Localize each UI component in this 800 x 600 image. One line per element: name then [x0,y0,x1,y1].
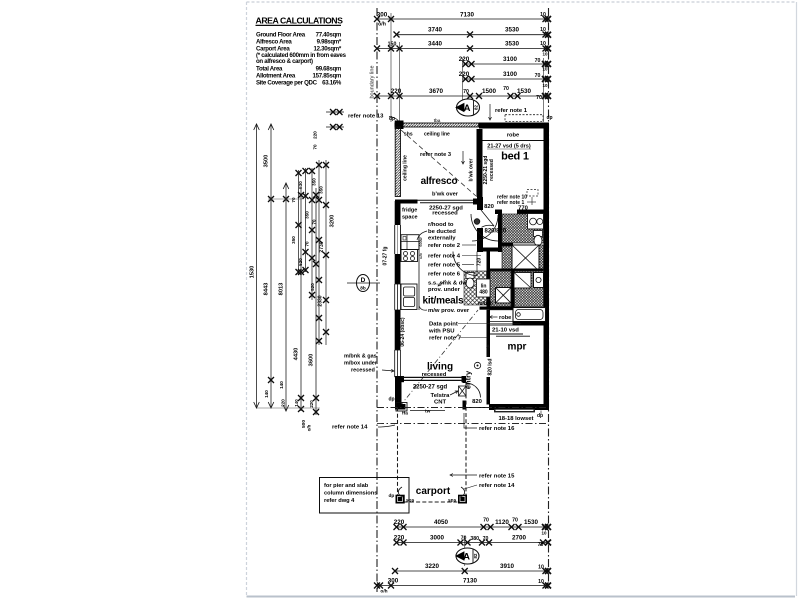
svg-text:column dimensions: column dimensions [324,491,377,497]
svg-text:10: 10 [540,27,546,33]
svg-text:10: 10 [540,41,546,47]
svg-text:820 lsd: 820 lsd [488,359,494,376]
svg-text:21-10 vsd: 21-10 vsd [492,328,519,334]
svg-text:3740: 3740 [428,27,443,34]
svg-text:ffa: ffa [402,411,408,417]
svg-text:3440: 3440 [428,41,443,48]
svg-text:70: 70 [535,73,541,79]
svg-text:8443: 8443 [264,283,270,296]
svg-text:70: 70 [312,219,317,225]
svg-text:2250-27 sgd: 2250-27 sgd [413,385,448,391]
svg-text:520: 520 [310,283,315,291]
svg-text:3530: 3530 [505,41,520,48]
svg-text:2730: 2730 [319,241,325,252]
svg-text:220: 220 [313,131,318,139]
svg-text:dp: dp [389,493,395,499]
svg-text:fridge: fridge [402,208,417,214]
svg-text:Data point: Data point [429,322,458,328]
svg-text:3670: 3670 [429,88,444,95]
svg-text:70: 70 [463,89,469,95]
svg-text:70: 70 [305,241,310,247]
svg-text:140: 140 [264,390,269,398]
svg-text:70: 70 [483,518,489,524]
svg-text:dp: dp [389,116,395,122]
svg-text:9.98sqm*: 9.98sqm* [317,39,342,46]
svg-text:70: 70 [512,518,518,524]
svg-text:06-24 (obsc): 06-24 (obsc) [400,317,406,347]
svg-text:140: 140 [294,399,299,407]
svg-text:refer note 3: refer note 3 [420,152,451,158]
svg-text:tba: tba [434,118,441,123]
svg-text:70: 70 [461,536,467,542]
svg-text:AREA CALCULATIONS: AREA CALCULATIONS [256,16,344,26]
svg-text:3100: 3100 [503,56,518,63]
svg-text:4050: 4050 [434,519,449,526]
svg-text:m/w prov. over: m/w prov. over [428,308,470,314]
svg-text:10: 10 [540,12,546,18]
svg-text:kit/meals: kit/meals [422,296,464,307]
svg-text:m/bnk & gas: m/bnk & gas [344,354,377,360]
svg-text:220: 220 [281,399,286,407]
svg-text:A: A [463,552,470,563]
svg-text:Allotment Area: Allotment Area [256,73,296,80]
svg-text:shs: shs [404,132,413,138]
svg-text:350: 350 [305,211,310,219]
svg-text:3910: 3910 [500,563,515,570]
svg-text:with PSU: with PSU [428,329,455,335]
svg-text:70: 70 [291,197,296,203]
svg-text:sps: sps [406,499,415,504]
svg-text:3220: 3220 [425,563,440,570]
svg-text:r/hood to: r/hood to [428,222,454,228]
svg-text:refer note 13: refer note 13 [348,114,384,120]
svg-text:robe: robe [499,315,511,321]
svg-text:82: 82 [474,105,479,110]
svg-text:2700: 2700 [512,535,527,542]
svg-text:8013: 8013 [279,283,285,296]
svg-text:220: 220 [394,519,405,526]
svg-text:b'wk over: b'wk over [432,192,459,198]
svg-text:720: 720 [477,258,483,267]
svg-text:refer note 7: refer note 7 [429,336,462,342]
svg-text:o/h: o/h [380,589,387,595]
svg-text:1530: 1530 [250,266,256,279]
svg-text:350: 350 [312,178,317,186]
svg-text:220: 220 [459,71,470,78]
svg-text:1530: 1530 [524,519,539,526]
svg-text:8b: 8b [360,286,366,291]
svg-text:refer note 1: refer note 1 [495,108,528,114]
svg-text:82: 82 [473,553,478,558]
svg-text:300: 300 [388,578,399,585]
svg-text:10: 10 [542,83,548,88]
svg-text:A: A [464,103,471,114]
svg-text:recessed: recessed [351,368,375,374]
svg-text:380: 380 [470,536,479,542]
svg-text:Telstra: Telstra [431,393,451,399]
svg-text:4430: 4430 [294,348,300,361]
svg-text:Total Area: Total Area [256,66,283,73]
svg-text:350: 350 [319,186,324,194]
svg-text:refer note 2: refer note 2 [428,243,461,249]
svg-text:70: 70 [536,95,542,101]
svg-text:refer note 14: refer note 14 [332,425,368,431]
svg-text:Alfresco Area: Alfresco Area [256,39,292,46]
svg-text:mpr: mpr [508,342,527,353]
svg-text:refer dwg 4: refer dwg 4 [324,498,355,504]
svg-text:150: 150 [388,42,397,48]
svg-text:m/box under: m/box under [344,361,378,367]
svg-text:1120: 1120 [495,519,509,526]
svg-text:220: 220 [394,535,405,542]
svg-text:s.s. sink & dw: s.s. sink & dw [428,281,467,287]
svg-text:Site Coverage per QDC: Site Coverage per QDC [256,80,318,87]
svg-text:10: 10 [538,565,544,571]
svg-text:820/820: 820/820 [485,229,507,235]
svg-text:220: 220 [459,56,470,63]
svg-text:63.16%: 63.16% [322,80,342,87]
svg-text:robe: robe [507,133,519,139]
svg-text:21-27 vsd (5 drs): 21-27 vsd (5 drs) [487,144,531,150]
svg-text:70: 70 [503,86,509,92]
svg-text:07-27 fg: 07-27 fg [383,247,389,266]
svg-text:dp: dp [537,413,543,419]
svg-text:living: living [427,362,453,373]
svg-text:3100: 3100 [503,71,518,78]
svg-text:820: 820 [472,399,483,405]
svg-text:Ground Floor Area: Ground Floor Area [256,32,306,39]
svg-text:70: 70 [483,536,489,542]
svg-text:refer note 5: refer note 5 [428,263,461,269]
svg-text:sps: sps [448,499,457,504]
svg-text:1530: 1530 [517,88,532,95]
svg-text:70: 70 [313,144,318,150]
svg-text:refer note 6: refer note 6 [428,272,461,278]
svg-text:10: 10 [542,52,548,57]
svg-text:3200: 3200 [330,215,336,228]
svg-text:refer note 16: refer note 16 [479,426,515,432]
svg-text:on alfresco & carport): on alfresco & carport) [256,58,313,65]
svg-text:for pier and slab: for pier and slab [324,483,369,489]
svg-text:2330: 2330 [318,295,324,306]
svg-text:prov. under: prov. under [428,287,461,293]
svg-text:externally: externally [428,236,456,242]
svg-text:140: 140 [279,381,284,389]
svg-text:refer note 15: refer note 15 [479,474,515,480]
svg-text:10: 10 [541,531,547,536]
svg-text:space: space [402,215,418,221]
svg-text:carport: carport [416,486,451,497]
svg-text:recessed: recessed [432,210,458,216]
svg-text:220: 220 [391,88,402,95]
svg-text:3500: 3500 [264,155,270,168]
svg-text:ceiling line: ceiling line [424,132,450,138]
svg-text:3600: 3600 [309,354,315,367]
svg-text:u/b: u/b [419,252,423,258]
svg-text:10: 10 [542,67,548,72]
svg-text:be ducted: be ducted [428,229,456,235]
svg-text:350: 350 [291,236,296,244]
svg-text:7130: 7130 [460,12,475,19]
svg-text:refer note 14: refer note 14 [479,483,515,489]
svg-text:b'wk over: b'wk over [469,159,475,182]
svg-text:77.40sqm: 77.40sqm [316,32,342,39]
svg-text:3000: 3000 [430,535,445,542]
svg-text:dp: dp [389,397,395,403]
svg-text:600w: 600w [419,237,423,246]
svg-text:300: 300 [377,12,388,19]
svg-text:1500: 1500 [482,88,497,95]
svg-text:18-18 lowset: 18-18 lowset [498,416,533,422]
svg-text:99.68sqm: 99.68sqm [316,66,342,73]
svg-text:820: 820 [484,204,495,210]
svg-text:480: 480 [479,290,488,296]
svg-text:10: 10 [538,579,544,585]
svg-text:tw: tw [425,409,431,415]
svg-text:o/h: o/h [307,424,312,431]
svg-text:220: 220 [309,400,314,408]
svg-text:3530: 3530 [505,27,520,34]
svg-text:bed 1: bed 1 [501,151,529,163]
svg-text:refer note 4: refer note 4 [428,254,461,260]
svg-text:CNT: CNT [434,400,447,406]
svg-text:157.85sqm: 157.85sqm [313,73,342,80]
svg-text:ceiling line: ceiling line [403,155,409,181]
svg-text:m/boil: m/boil [478,301,493,307]
svg-text:7130: 7130 [463,578,478,585]
svg-text:dp: dp [547,115,553,121]
svg-text:o/h: o/h [378,22,386,28]
svg-text:70: 70 [538,542,544,548]
svg-text:recessed: recessed [489,159,495,181]
svg-text:70: 70 [535,58,541,64]
svg-text:alfresco: alfresco [421,176,458,187]
